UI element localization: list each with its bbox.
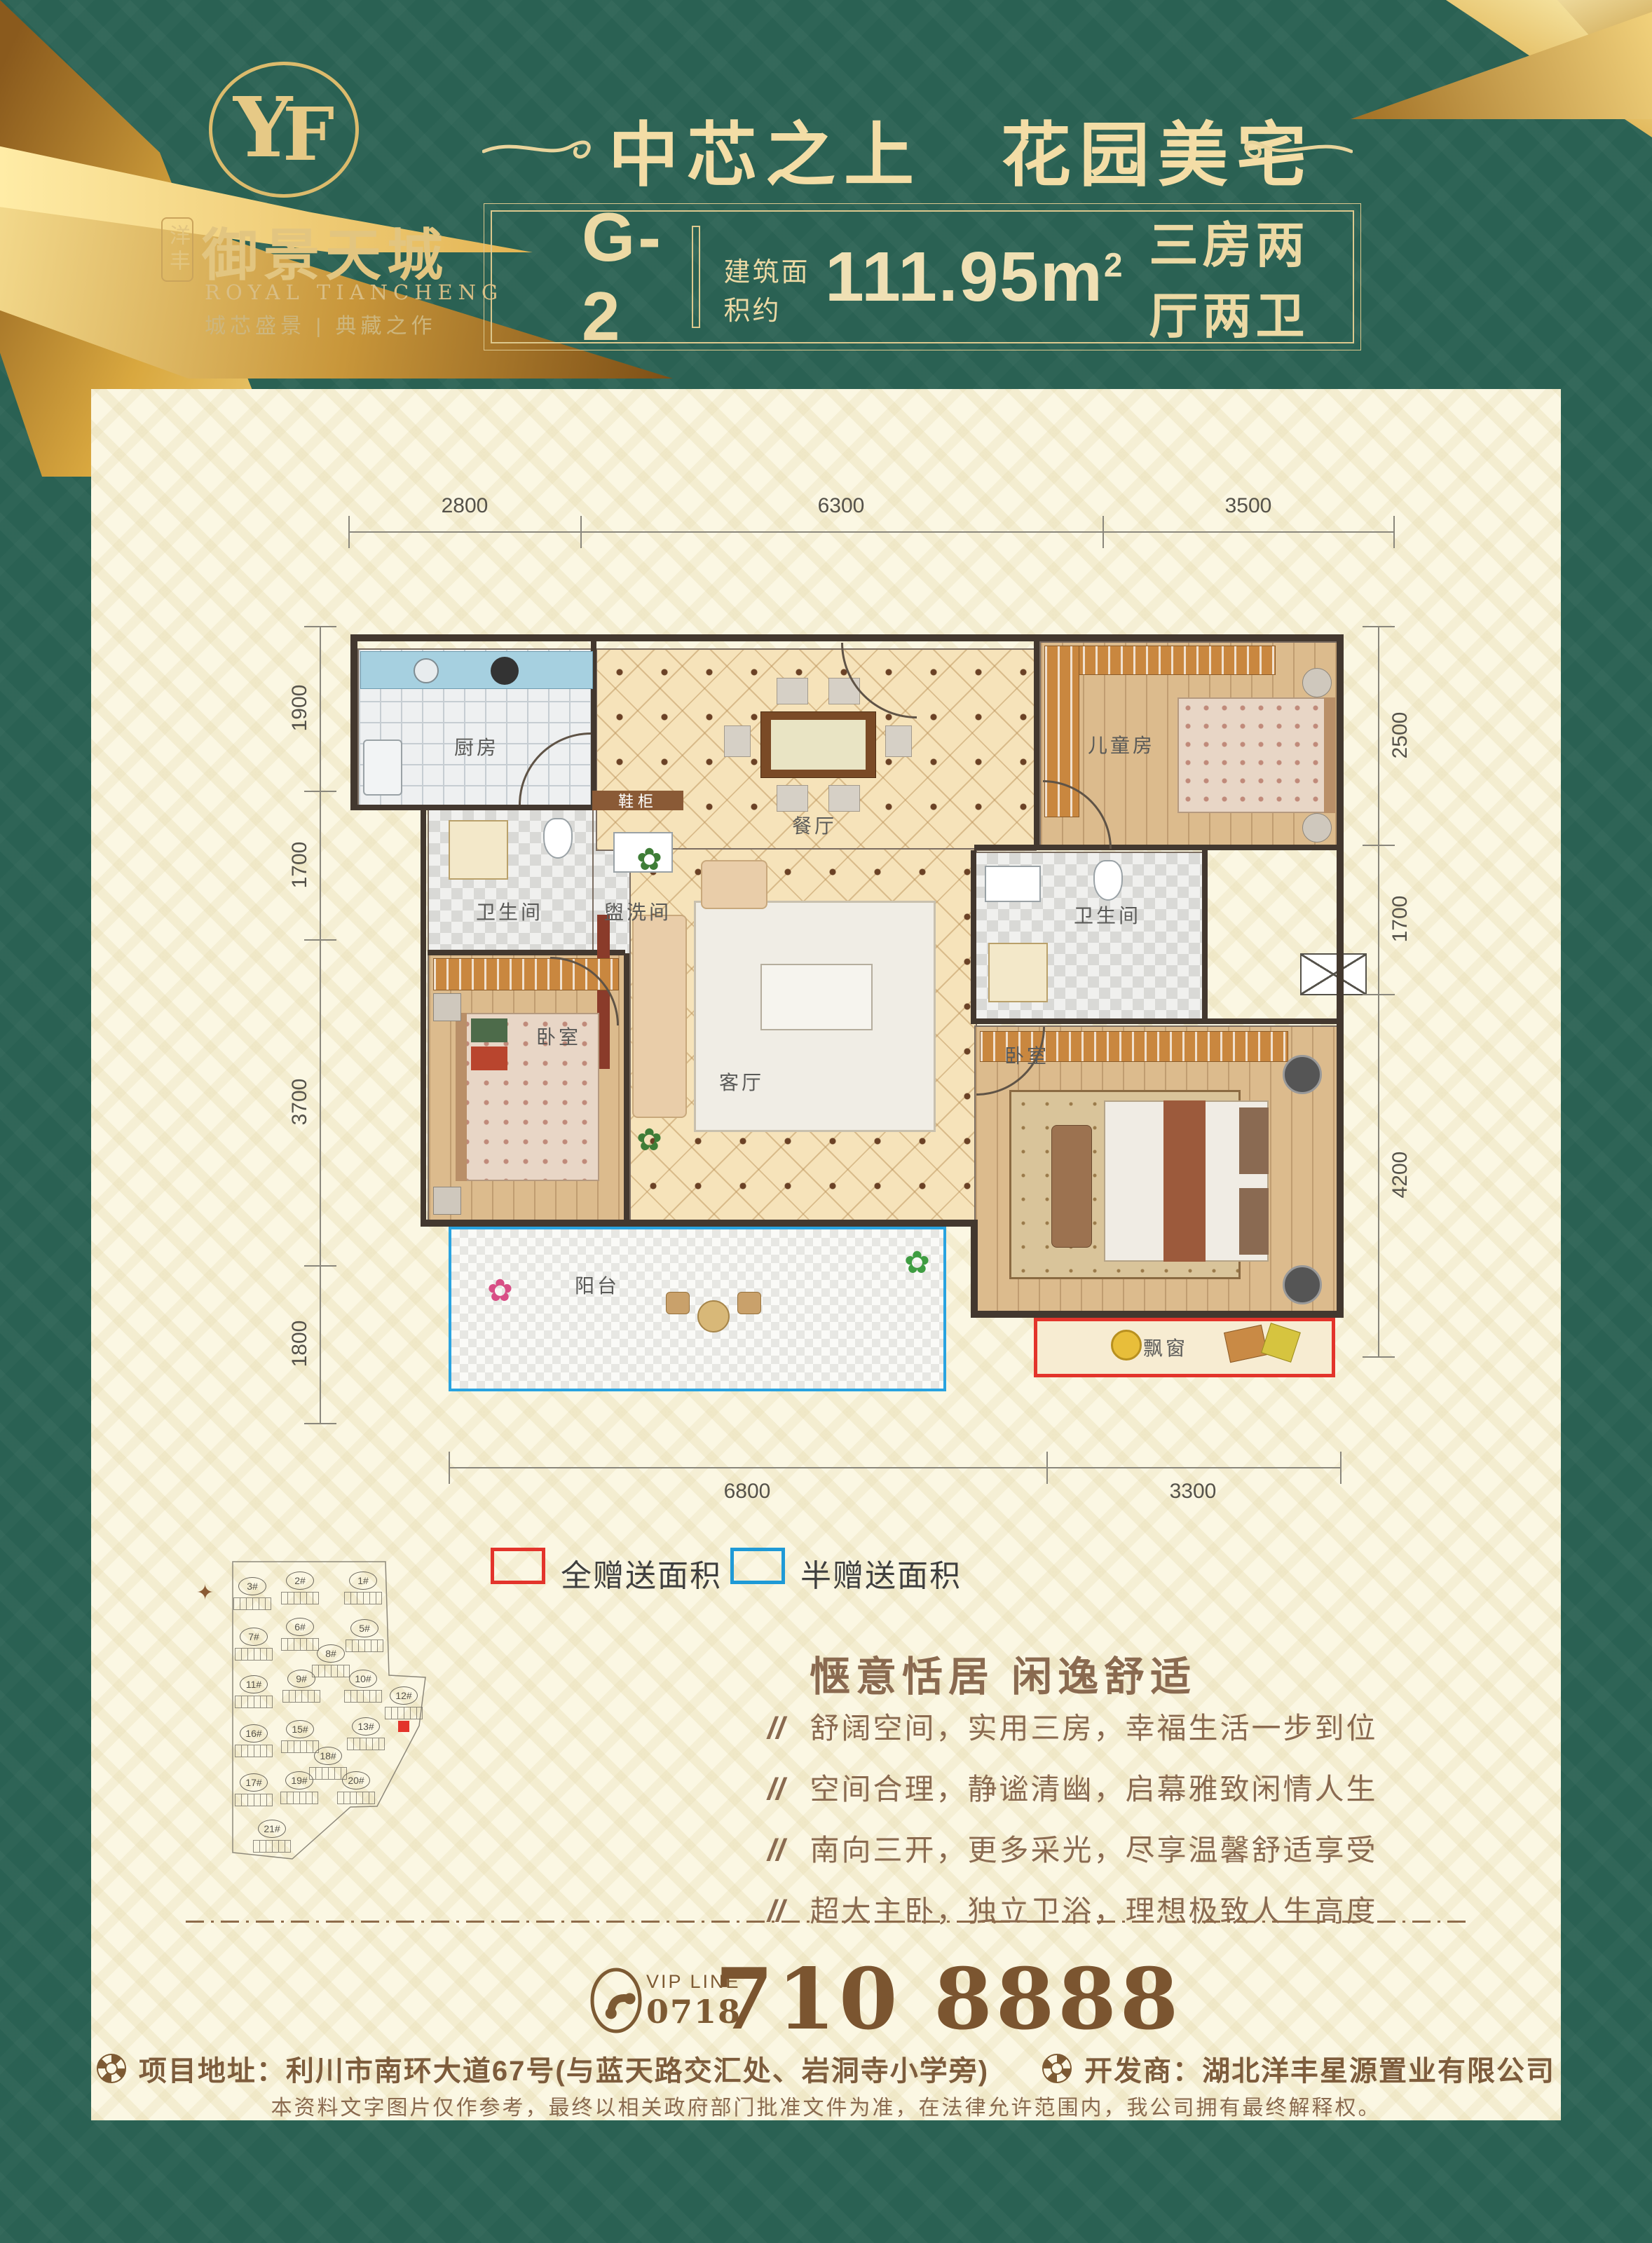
wall <box>971 1018 1344 1024</box>
site-map-building-5: 5# <box>346 1619 383 1652</box>
dim-line-top <box>348 531 1395 533</box>
pillow <box>1239 1188 1269 1255</box>
site-map-building-1: 1# <box>344 1572 382 1604</box>
building-number: 17# <box>240 1773 268 1792</box>
nightstand <box>1302 668 1332 697</box>
unit-room-count: 三房两厅两卫 <box>1149 206 1353 348</box>
dash-divider <box>186 1921 1468 1923</box>
building-glyph <box>281 1592 319 1604</box>
flourish-left-icon <box>482 125 598 174</box>
site-map-building-20: 20# <box>337 1771 375 1804</box>
developer-value: 湖北洋丰星源置业有限公司 <box>1202 2056 1555 2087</box>
wall <box>971 850 976 1024</box>
kids-bed-headboard <box>1324 697 1335 813</box>
footer-row: 项目地址：利川市南环大道67号(与蓝天路交汇处、岩洞寺小学旁) 开发商：湖北洋丰… <box>91 2048 1561 2089</box>
sink-icon <box>414 658 439 683</box>
building-number: 12# <box>390 1686 418 1705</box>
brand-seal: 洋丰 <box>161 217 193 282</box>
building-glyph <box>235 1745 273 1757</box>
dim-left-1: 1900 <box>288 685 312 732</box>
brand-name-en: ROYAL TIANCHENG <box>205 280 503 304</box>
dim-line-bottom <box>449 1467 1340 1468</box>
site-map: ✦ 3#2#1#7#6#8#5#11#9#10#12#16#15#13#18#1… <box>147 1542 456 1872</box>
building-number: 13# <box>352 1717 380 1736</box>
unit-area-number: 111.95m <box>825 238 1104 316</box>
building-glyph <box>235 1794 273 1806</box>
building-glyph <box>337 1792 375 1804</box>
phone-icon <box>589 1967 643 2034</box>
unit-info-box: G-2 建筑面积约 111.95m2 三房两厅两卫 <box>491 210 1354 343</box>
label-balcony: 阳台 <box>575 1271 620 1299</box>
site-map-building-19: 19# <box>280 1771 318 1804</box>
selling-point: //空间合理，静谧清幽，启幕雅致闲情人生 <box>767 1766 1377 1808</box>
wall <box>428 950 625 955</box>
legend-half-gift-label: 半赠送面积 <box>800 1550 962 1595</box>
bed-headboard <box>456 1013 467 1181</box>
address-label: 项目地址： <box>139 2056 286 2087</box>
wall <box>357 805 592 810</box>
building-glyph <box>280 1792 318 1804</box>
dim-line-left <box>320 626 321 1424</box>
building-number: 11# <box>240 1675 268 1693</box>
dim-tick <box>1393 516 1395 548</box>
dining-chair <box>724 725 751 757</box>
plant-icon: ✿ <box>636 1125 662 1156</box>
label-bedroom-master: 卧室 <box>1004 1041 1049 1069</box>
nightstand <box>1302 813 1332 843</box>
pillow <box>471 1046 507 1070</box>
label-kids: 儿童房 <box>1088 730 1155 758</box>
building-number: 8# <box>317 1644 345 1663</box>
dim-left-3: 3700 <box>288 1079 312 1126</box>
dining-chair <box>885 725 912 757</box>
nightstand <box>433 993 461 1021</box>
selling-point: //超大主卧，独立卫浴，理想极致人生高度 <box>767 1888 1377 1930</box>
unit-box-divider <box>692 226 700 328</box>
unit-area-label: 建筑面积约 <box>724 250 816 327</box>
dim-tick <box>1103 516 1104 548</box>
building-glyph <box>233 1597 271 1610</box>
compass-icon: ✦ <box>196 1581 214 1605</box>
poster-slogan: 中芯之上 花园美宅 <box>608 98 1315 200</box>
site-map-building-13: 13# <box>347 1717 385 1750</box>
label-dining: 餐厅 <box>792 811 837 839</box>
sunflower-plate <box>1111 1330 1142 1361</box>
monogram-f: F <box>282 91 334 177</box>
building-number: 20# <box>342 1771 370 1789</box>
building-number: 16# <box>240 1724 268 1743</box>
bath2-basin <box>985 866 1041 902</box>
shower <box>449 820 508 880</box>
brand-tagline: 城芯盛景 | 典藏之作 <box>205 308 436 339</box>
coffee-table <box>760 964 873 1030</box>
selling-point: //舒阔空间，实用三房，幸福生活一步到位 <box>767 1705 1377 1747</box>
dim-left-4: 1800 <box>288 1321 312 1368</box>
room-balcony <box>449 1227 946 1391</box>
dining-chair <box>777 785 808 812</box>
brand-name: 御景天城 <box>202 210 449 292</box>
site-map-building-21: 21# <box>253 1820 291 1853</box>
slash-icon: // <box>767 1711 784 1746</box>
site-map-building-11: 11# <box>235 1675 273 1708</box>
nightstand-lamp <box>1283 1055 1322 1094</box>
flourish-right-icon <box>1237 125 1353 174</box>
balcony-chair <box>737 1292 761 1314</box>
bath2-shower <box>988 943 1048 1002</box>
building-glyph <box>347 1738 385 1750</box>
unit-code: G-2 <box>582 198 664 356</box>
site-map-building-7: 7# <box>235 1628 273 1661</box>
lifebuoy-icon <box>1042 2054 1072 2083</box>
dim-tick <box>1340 1452 1342 1484</box>
fridge <box>363 739 402 796</box>
wall <box>974 845 1344 850</box>
dim-tick <box>1363 994 1395 995</box>
toilet <box>543 818 573 859</box>
disclaimer: 本资料文字图片仅作参考，最终以相关政府部门批准文件为准，在法律允许范围内，我公司… <box>91 2090 1561 2121</box>
kitchen-counter <box>360 651 593 689</box>
building-number: 7# <box>240 1628 268 1646</box>
address-value: 利川市南环大道67号(与蓝天路交汇处、岩洞寺小学旁) <box>286 2056 989 2087</box>
dim-right-3: 4200 <box>1388 1152 1412 1199</box>
dim-tick <box>1363 845 1395 846</box>
site-map-building-9: 9# <box>282 1670 320 1703</box>
wall <box>1034 641 1039 848</box>
dim-tick <box>449 1452 450 1484</box>
selling-point-text: 舒阔空间，实用三房，幸福生活一步到位 <box>810 1705 1377 1747</box>
wall <box>421 805 426 1225</box>
building-glyph <box>344 1592 382 1604</box>
dining-table-top <box>771 720 866 770</box>
dim-bottom-1: 6800 <box>724 1480 771 1504</box>
building-number: 2# <box>286 1572 314 1590</box>
developer-label: 开发商： <box>1084 2056 1202 2087</box>
dim-right-1: 2500 <box>1388 712 1412 759</box>
dim-line-right <box>1378 626 1379 1356</box>
wall <box>350 634 1344 641</box>
wall <box>971 1311 1344 1318</box>
legend-full-gift-swatch <box>491 1548 545 1584</box>
building-glyph <box>235 1648 273 1661</box>
site-map-building-12: 12# <box>385 1686 423 1732</box>
dim-top-2: 6300 <box>818 494 865 518</box>
label-bath-1: 卫生间 <box>476 897 543 925</box>
balcony-chair <box>666 1292 690 1314</box>
pillow <box>471 1018 507 1042</box>
shoe-cabinet: 鞋柜 <box>592 791 683 810</box>
building-number: 6# <box>286 1618 314 1636</box>
armchair <box>701 860 767 909</box>
dining-chair <box>828 785 860 812</box>
dim-top-1: 2800 <box>442 494 489 518</box>
label-bedroom-left: 卧室 <box>536 1022 581 1050</box>
building-glyph <box>282 1690 320 1703</box>
highlight-unit-marker <box>398 1721 409 1732</box>
dining-chair <box>777 678 808 704</box>
building-number: 10# <box>349 1670 377 1688</box>
selling-point: //南向三开，更多采光，尽享温馨舒适享受 <box>767 1827 1377 1869</box>
selling-point-text: 超大主卧，独立卫浴，理想极致人生高度 <box>810 1888 1377 1930</box>
nightstand-lamp <box>1283 1265 1322 1304</box>
dim-tick <box>304 939 336 941</box>
slash-icon: // <box>767 1833 784 1868</box>
dim-tick <box>348 516 350 548</box>
lifebuoy-icon <box>97 2054 126 2083</box>
dim-tick <box>304 1265 336 1267</box>
bath2-toilet <box>1093 860 1123 901</box>
building-glyph <box>385 1707 423 1719</box>
dim-tick <box>304 626 336 627</box>
building-number: 18# <box>314 1747 342 1765</box>
kids-bed <box>1177 697 1335 813</box>
plant-icon: ✿ <box>636 845 662 875</box>
building-glyph <box>235 1696 273 1708</box>
poster-page: Y F 洋丰 御景天城 ROYAL TIANCHENG 城芯盛景 | 典藏之作 … <box>0 0 1652 2243</box>
selling-point-text: 空间合理，静谧清幽，启幕雅致闲情人生 <box>810 1766 1377 1808</box>
building-number: 3# <box>238 1577 266 1595</box>
label-living: 客厅 <box>719 1068 764 1096</box>
floor-plan: 鞋柜 ✿ ✿ <box>350 634 1349 1395</box>
dim-right-2: 1700 <box>1388 896 1412 943</box>
wall <box>1202 850 1208 1022</box>
wall <box>421 1220 978 1227</box>
building-number: 21# <box>258 1820 286 1838</box>
label-washroom: 盥洗间 <box>604 897 671 925</box>
dim-tick <box>580 516 582 548</box>
building-glyph <box>346 1639 383 1652</box>
site-map-building-17: 17# <box>235 1773 273 1806</box>
plant-icon: ✿ <box>904 1248 930 1279</box>
balcony-table <box>697 1300 730 1332</box>
developer: 开发商：湖北洋丰星源置业有限公司 <box>1084 2048 1555 2089</box>
dim-tick <box>1363 1356 1395 1358</box>
legend-half-gift-swatch <box>730 1548 785 1584</box>
site-map-building-2: 2# <box>281 1572 319 1604</box>
site-map-building-3: 3# <box>233 1577 271 1610</box>
brand-logo-monogram: Y F <box>209 62 359 198</box>
label-kitchen: 厨房 <box>454 732 499 761</box>
wall <box>1337 634 1344 1318</box>
dim-tick <box>1046 1452 1048 1484</box>
label-bay-window: 飘窗 <box>1143 1333 1188 1361</box>
stove-icon <box>491 657 519 685</box>
bench <box>1051 1125 1092 1248</box>
wall <box>624 953 629 1227</box>
selling-point-text: 南向三开，更多采光，尽享温馨舒适享受 <box>810 1827 1377 1869</box>
pillow <box>1239 1107 1269 1174</box>
label-bath-2: 卫生间 <box>1074 901 1141 929</box>
building-glyph <box>253 1840 291 1853</box>
legend-full-gift-label: 全赠送面积 <box>561 1550 722 1595</box>
dim-bottom-2: 3300 <box>1170 1480 1217 1504</box>
building-number: 19# <box>285 1771 313 1789</box>
wall <box>350 641 357 805</box>
slash-icon: // <box>767 1894 784 1929</box>
unit-area-sup: 2 <box>1104 247 1124 284</box>
slash-icon: // <box>767 1772 784 1807</box>
building-number: 1# <box>349 1572 377 1590</box>
elevator-shaft-box <box>1300 953 1367 995</box>
selling-points: //舒阔空间，实用三房，幸福生活一步到位//空间合理，静谧清幽，启幕雅致闲情人生… <box>767 1705 1377 1949</box>
building-number: 5# <box>350 1619 378 1637</box>
site-map-building-10: 10# <box>344 1670 382 1703</box>
nightstand <box>433 1187 461 1215</box>
dim-tick <box>304 1423 336 1424</box>
phone-number[interactable]: 710 8888 <box>715 1950 1182 2049</box>
dim-tick <box>1363 626 1395 627</box>
wall <box>971 1220 978 1318</box>
building-glyph <box>344 1690 382 1703</box>
dim-top-3: 3500 <box>1225 494 1272 518</box>
sofa <box>632 915 687 1118</box>
building-number: 15# <box>286 1720 314 1738</box>
flower-icon: ✿ <box>487 1276 513 1307</box>
project-address: 项目地址：利川市南环大道67号(与蓝天路交汇处、岩洞寺小学旁) <box>139 2048 989 2089</box>
site-map-building-16: 16# <box>235 1724 273 1757</box>
dim-tick <box>304 791 336 792</box>
dim-left-2: 1700 <box>288 842 312 889</box>
marketing-heading: 惬意恬居 闲逸舒适 <box>810 1644 1196 1703</box>
master-bed-runner <box>1163 1100 1206 1262</box>
unit-area-value: 111.95m2 <box>825 237 1124 318</box>
building-number: 9# <box>287 1670 315 1688</box>
